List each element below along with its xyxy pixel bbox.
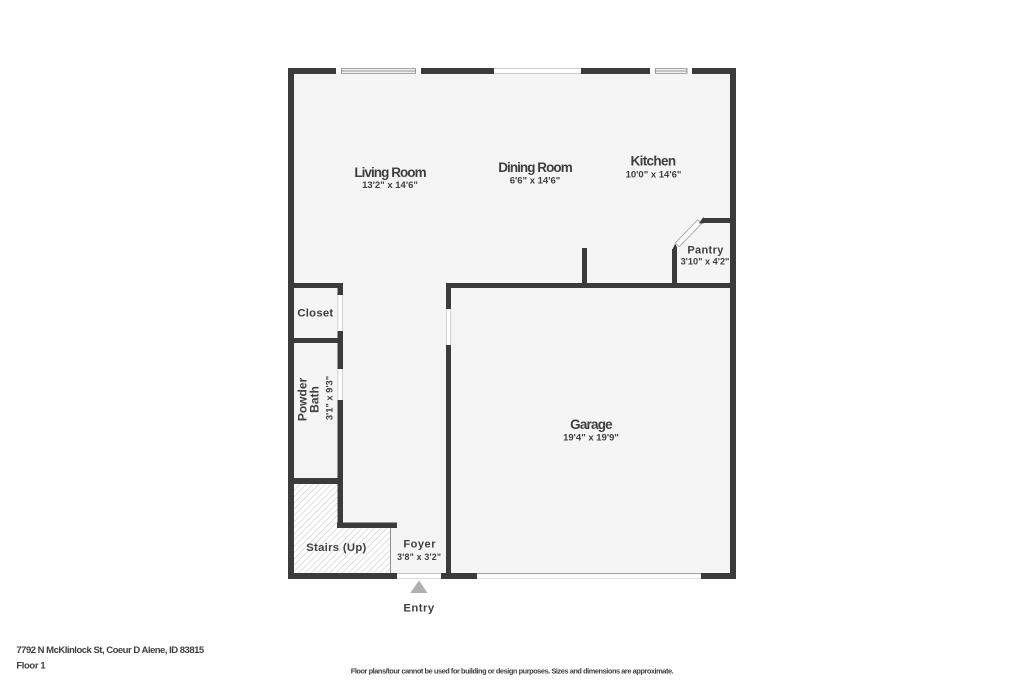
svg-text:Entry: Entry: [403, 603, 434, 615]
svg-text:Pantry: Pantry: [687, 245, 724, 257]
svg-text:3'1" x 9'3": 3'1" x 9'3": [325, 376, 335, 420]
svg-text:Kitchen: Kitchen: [631, 154, 676, 169]
svg-text:19'4" x 19'9": 19'4" x 19'9": [563, 432, 619, 443]
svg-text:3'8" x 3'2": 3'8" x 3'2": [397, 552, 441, 562]
svg-text:13'2" x 14'6": 13'2" x 14'6": [362, 180, 418, 191]
svg-text:3'10" x 4'2": 3'10" x 4'2": [681, 257, 730, 267]
svg-text:Living Room: Living Room: [354, 165, 426, 180]
svg-text:Garage: Garage: [570, 417, 613, 432]
svg-text:6'6" x 14'6": 6'6" x 14'6": [510, 176, 561, 187]
svg-text:Stairs (Up): Stairs (Up): [306, 542, 366, 554]
svg-text:Foyer: Foyer: [403, 539, 436, 551]
svg-text:Closet: Closet: [297, 307, 333, 319]
svg-text:10'0" x 14'6": 10'0" x 14'6": [626, 169, 682, 180]
svg-text:Bath: Bath: [307, 386, 321, 413]
svg-text:Dining Room: Dining Room: [498, 160, 572, 175]
svg-text:7792 N McKlinlock St, Coeur D: 7792 N McKlinlock St, Coeur D Alene, ID …: [16, 645, 204, 656]
svg-text:Floor 1: Floor 1: [16, 660, 46, 671]
svg-text:Floor plans/tour cannot be use: Floor plans/tour cannot be used for buil…: [351, 667, 674, 676]
